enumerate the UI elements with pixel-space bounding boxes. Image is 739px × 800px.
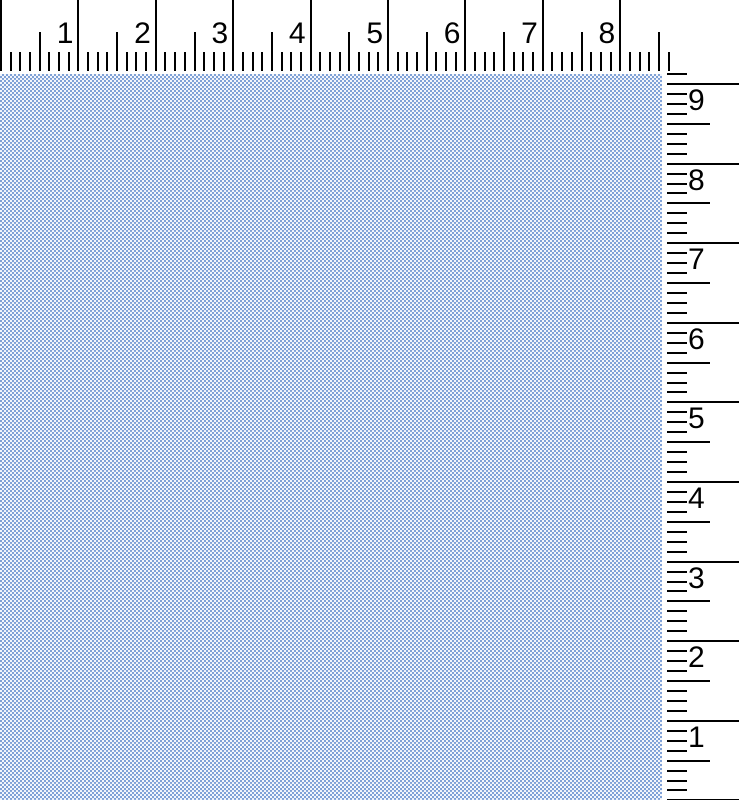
inch-label: 3: [688, 564, 705, 594]
tick-mark: [667, 660, 687, 662]
tick-mark: [667, 332, 687, 334]
tick-mark: [368, 52, 370, 71]
tick-mark: [667, 103, 687, 105]
tick-mark: [667, 491, 687, 493]
tick-mark: [667, 680, 710, 682]
inch-label: 5: [688, 404, 705, 434]
tick-mark: [87, 52, 89, 71]
tick-mark: [667, 789, 687, 791]
tick-mark: [39, 32, 41, 71]
tick-mark: [667, 362, 710, 364]
tick-mark: [97, 52, 99, 71]
tick-mark: [667, 690, 687, 692]
tick-mark: [667, 610, 687, 612]
tick-mark: [329, 52, 331, 71]
tick-mark: [261, 52, 263, 71]
tick-mark: [667, 292, 687, 294]
tick-mark: [542, 0, 544, 71]
tick-mark: [667, 222, 687, 224]
inch-label: 8: [688, 166, 705, 196]
tick-mark: [435, 52, 437, 71]
tick-mark: [667, 272, 687, 274]
tick-mark: [551, 52, 553, 71]
tick-mark: [667, 581, 687, 583]
tick-mark: [397, 52, 399, 71]
tick-mark: [194, 32, 196, 71]
tick-mark: [281, 52, 283, 71]
tick-mark: [319, 52, 321, 71]
tick-mark: [445, 52, 447, 71]
tick-mark: [377, 52, 379, 71]
tick-mark: [667, 590, 687, 592]
inch-label: 7: [688, 245, 705, 275]
tick-mark: [667, 770, 687, 772]
tick-mark: [426, 32, 428, 71]
tick-mark: [667, 73, 687, 75]
tick-mark: [639, 52, 641, 71]
tick-mark: [667, 511, 687, 513]
tick-mark: [667, 541, 687, 543]
tick-mark: [667, 411, 687, 413]
tick-mark: [667, 750, 687, 752]
tick-mark: [339, 52, 341, 71]
tick-mark: [667, 232, 687, 234]
tick-mark: [667, 252, 687, 254]
inch-label: 3: [212, 19, 229, 49]
tick-mark: [0, 0, 2, 71]
tick-mark: [667, 441, 710, 443]
tick-mark: [271, 32, 273, 71]
tick-mark: [184, 52, 186, 71]
tick-mark: [667, 352, 687, 354]
tick-mark: [668, 52, 670, 71]
tick-mark: [667, 760, 710, 762]
tick-mark: [213, 52, 215, 71]
tick-mark: [174, 52, 176, 71]
tick-mark: [464, 0, 466, 71]
tick-mark: [610, 52, 612, 71]
tick-mark: [667, 431, 687, 433]
tick-mark: [474, 52, 476, 71]
top-ruler: 12345678: [0, 0, 672, 73]
tick-mark: [348, 32, 350, 71]
inch-label: 2: [688, 643, 705, 673]
tick-mark: [522, 52, 524, 71]
tick-mark: [29, 52, 31, 71]
tick-mark: [667, 113, 687, 115]
tick-mark: [387, 0, 389, 71]
tick-mark: [667, 670, 687, 672]
tick-mark: [155, 0, 157, 71]
tick-mark: [667, 700, 687, 702]
tick-mark: [406, 52, 408, 71]
tick-mark: [667, 451, 687, 453]
tick-mark: [532, 52, 534, 71]
inch-label: 2: [134, 19, 151, 49]
tick-mark: [667, 521, 710, 523]
inch-label: 5: [366, 19, 383, 49]
tick-mark: [667, 302, 687, 304]
tick-mark: [484, 52, 486, 71]
tick-mark: [503, 32, 505, 71]
tick-mark: [223, 52, 225, 71]
tick-mark: [58, 52, 60, 71]
tick-mark: [581, 32, 583, 71]
tick-mark: [561, 52, 563, 71]
tick-mark: [135, 52, 137, 71]
tick-mark: [667, 740, 687, 742]
inch-label: 6: [688, 325, 705, 355]
tick-mark: [667, 153, 687, 155]
tick-mark: [203, 52, 205, 71]
tick-mark: [290, 52, 292, 71]
tick-mark: [667, 183, 687, 185]
inch-label: 4: [688, 484, 705, 514]
tick-mark: [667, 471, 687, 473]
tick-mark: [455, 52, 457, 71]
tick-mark: [493, 52, 495, 71]
tick-mark: [667, 133, 687, 135]
tick-mark: [667, 372, 687, 374]
inch-label: 6: [444, 19, 461, 49]
tick-mark: [232, 0, 234, 71]
tick-mark: [667, 600, 710, 602]
tick-mark: [667, 780, 687, 782]
tick-mark: [68, 52, 70, 71]
inch-label: 9: [688, 86, 705, 116]
inch-label: 1: [57, 19, 74, 49]
fabric-measurement-view: 12345678 987654321: [0, 0, 739, 800]
inch-label: 4: [289, 19, 306, 49]
tick-mark: [667, 312, 687, 314]
tick-mark: [667, 650, 687, 652]
tick-mark: [667, 262, 687, 264]
tick-mark: [667, 461, 687, 463]
tick-mark: [667, 212, 687, 214]
tick-mark: [667, 571, 687, 573]
tick-mark: [600, 52, 602, 71]
tick-mark: [667, 282, 710, 284]
tick-mark: [667, 501, 687, 503]
inch-label: 7: [521, 19, 538, 49]
tick-mark: [416, 52, 418, 71]
tick-mark: [77, 0, 79, 71]
tick-mark: [358, 52, 360, 71]
tick-mark: [667, 173, 687, 175]
tick-mark: [648, 52, 650, 71]
tick-mark: [667, 391, 687, 393]
tick-mark: [242, 52, 244, 71]
inch-label: 1: [688, 723, 705, 753]
tick-mark: [19, 52, 21, 71]
tick-mark: [164, 52, 166, 71]
tick-mark: [658, 32, 660, 71]
tick-mark: [619, 0, 621, 71]
tick-mark: [571, 52, 573, 71]
tick-mark: [513, 52, 515, 71]
tick-mark: [667, 382, 687, 384]
tick-mark: [667, 620, 687, 622]
tick-mark: [252, 52, 254, 71]
tick-mark: [667, 630, 687, 632]
tick-mark: [667, 143, 687, 145]
tick-mark: [667, 93, 687, 95]
tick-mark: [667, 123, 710, 125]
tick-mark: [667, 710, 687, 712]
fabric-swatch: [0, 74, 662, 800]
right-ruler: 987654321: [667, 73, 739, 800]
tick-mark: [145, 52, 147, 71]
tick-mark: [667, 202, 710, 204]
tick-mark: [667, 531, 687, 533]
tick-mark: [310, 0, 312, 71]
tick-mark: [106, 52, 108, 71]
tick-mark: [667, 421, 687, 423]
tick-mark: [126, 52, 128, 71]
tick-mark: [667, 551, 687, 553]
tick-mark: [116, 32, 118, 71]
tick-mark: [667, 342, 687, 344]
tick-mark: [300, 52, 302, 71]
tick-mark: [590, 52, 592, 71]
tick-mark: [667, 192, 687, 194]
tick-mark: [10, 52, 12, 71]
tick-mark: [629, 52, 631, 71]
tick-mark: [667, 730, 687, 732]
tick-mark: [48, 52, 50, 71]
inch-label: 8: [599, 19, 616, 49]
